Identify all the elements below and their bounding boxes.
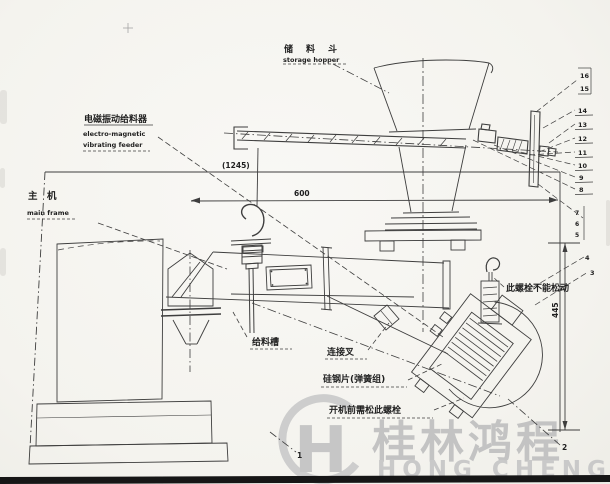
electromagnetic-drive xyxy=(398,273,542,425)
callout-7: 7 xyxy=(575,210,579,217)
main-frame-label-en: main frame xyxy=(27,209,69,217)
feeder-label-en1: electro-magnetic xyxy=(83,130,146,138)
dim-445: 445 xyxy=(551,302,560,318)
diagram-canvas: H 桂林鸿程 HONG CHENG xyxy=(0,0,610,484)
hanger-hook xyxy=(231,204,271,333)
discharge-chute xyxy=(161,250,221,372)
callout-9: 9 xyxy=(579,174,584,182)
callout-10: 10 xyxy=(578,162,588,170)
callout-4: 4 xyxy=(585,254,590,262)
callout-3: 3 xyxy=(590,269,595,277)
callout-13: 13 xyxy=(578,121,587,129)
storage-hopper xyxy=(365,58,493,332)
inspection-cover xyxy=(266,265,312,290)
feeder-label-cn: 电磁振动给料器 xyxy=(84,113,148,125)
callout-8: 8 xyxy=(579,186,584,194)
callout-15: 15 xyxy=(580,85,590,93)
spring-pack-label: 硅钢片(弹簧组) xyxy=(323,373,385,385)
callout-1: 1 xyxy=(297,451,302,460)
dim-1245: (1245) xyxy=(222,161,250,170)
callout-2: 2 xyxy=(562,443,567,452)
label-leaders xyxy=(98,64,504,410)
callout-5: 5 xyxy=(575,232,579,239)
storage-hopper-label-cn: 储 料 斗 xyxy=(284,43,339,55)
feeder-label-en2: vibrating feeder xyxy=(83,141,143,149)
storage-hopper-label-en: storage hopper xyxy=(283,56,340,64)
suspension-rail xyxy=(224,111,558,187)
loosen-before-start-label: 开机前需松此螺栓 xyxy=(329,404,401,416)
callout-6: 6 xyxy=(575,221,579,228)
feed-trough-label: 给料槽 xyxy=(252,336,279,348)
callout-14: 14 xyxy=(578,107,588,115)
callout-11: 11 xyxy=(578,149,588,157)
bolt-hook-icon xyxy=(486,258,499,272)
callout-16: 16 xyxy=(580,72,590,80)
pedestal-base xyxy=(29,401,228,464)
connecting-fork xyxy=(374,305,399,330)
scan-plus-mark xyxy=(123,23,133,33)
do-not-loosen-label: 此螺栓不能松动 xyxy=(506,282,569,294)
main-frame-label-cn: 主 机 xyxy=(28,190,57,202)
watermark-logo-letter: H xyxy=(294,414,348,484)
spring-bolt xyxy=(478,258,502,324)
callout-12: 12 xyxy=(578,135,587,143)
dim-600: 600 xyxy=(294,189,310,198)
cable-guard-arc xyxy=(449,302,542,408)
feeder-trough xyxy=(166,246,450,310)
hook-icon xyxy=(242,204,264,236)
scanned-technical-drawing: H 桂林鸿程 HONG CHENG xyxy=(0,0,610,484)
connecting-fork-label: 连接叉 xyxy=(327,346,355,358)
main-frame-body xyxy=(57,239,163,402)
